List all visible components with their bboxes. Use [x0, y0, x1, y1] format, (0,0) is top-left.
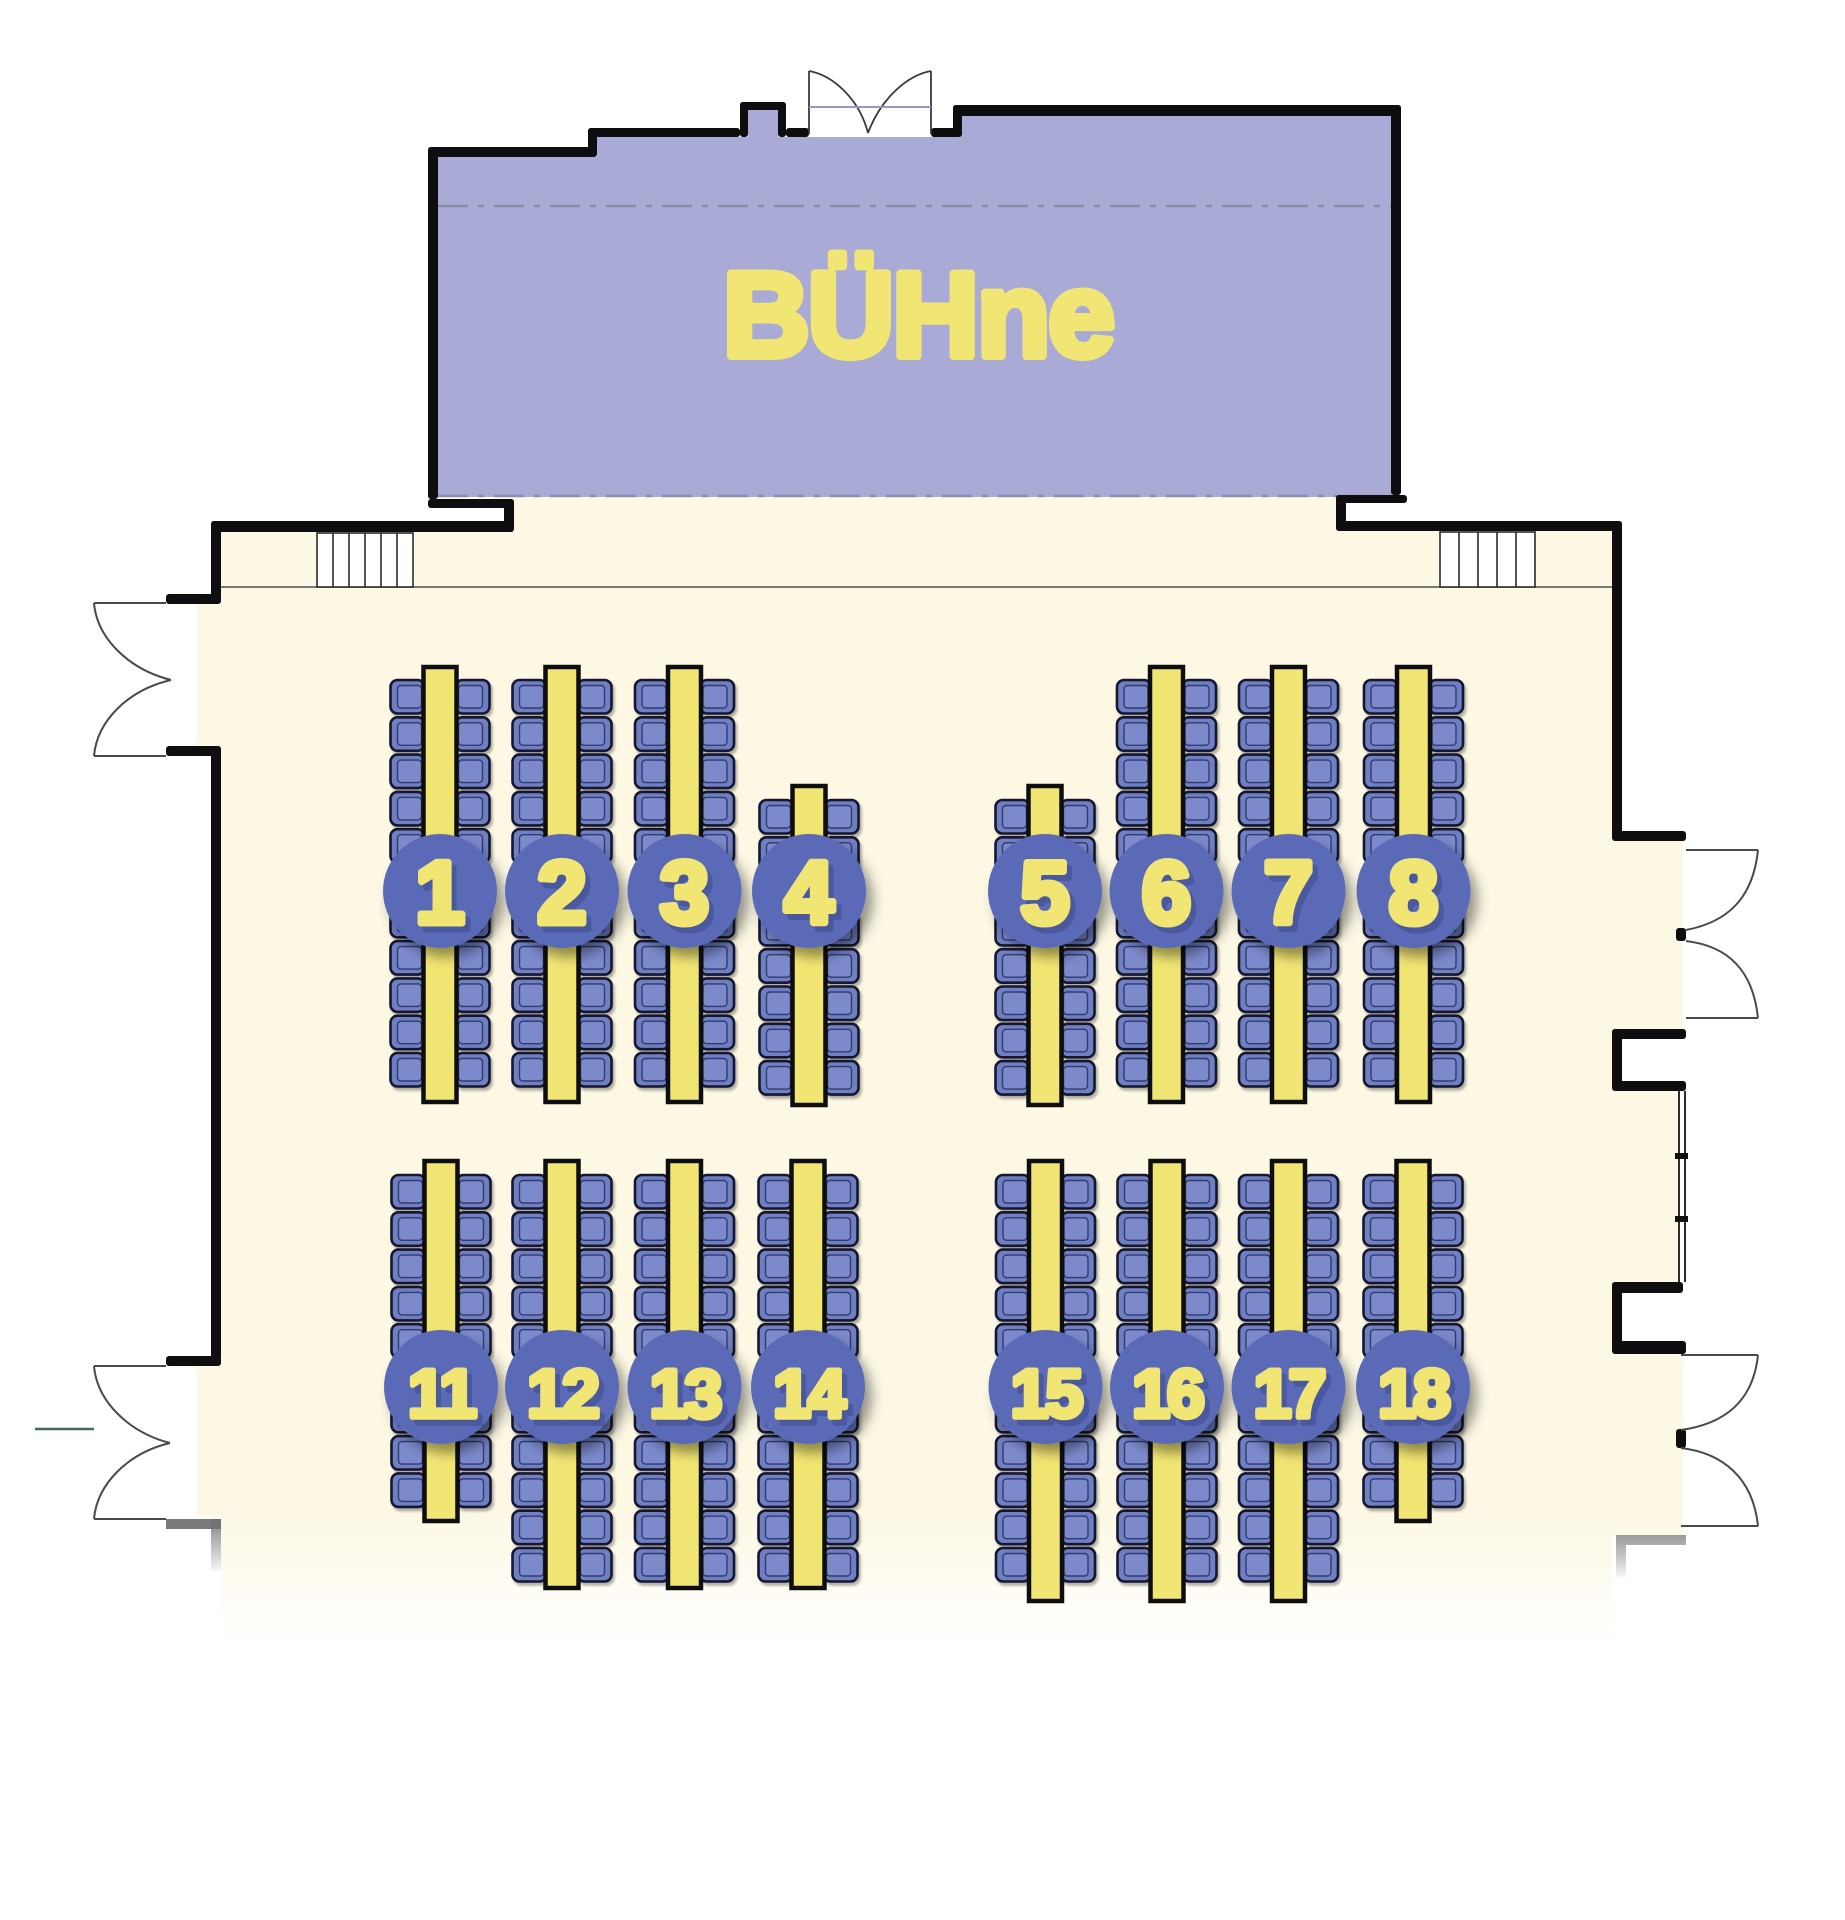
svg-text:14: 14: [773, 1356, 846, 1432]
svg-text:13: 13: [650, 1356, 721, 1432]
svg-text:16: 16: [1132, 1356, 1203, 1432]
svg-text:5: 5: [1021, 843, 1070, 942]
svg-text:1: 1: [416, 843, 465, 942]
svg-text:3: 3: [660, 843, 709, 942]
svg-text:8: 8: [1389, 843, 1438, 942]
svg-text:12: 12: [527, 1356, 598, 1432]
svg-text:18: 18: [1378, 1356, 1449, 1432]
svg-text:6: 6: [1142, 843, 1191, 942]
svg-text:7: 7: [1264, 843, 1313, 942]
svg-text:BÜHne: BÜHne: [723, 248, 1113, 382]
svg-text:4: 4: [785, 843, 834, 942]
svg-text:11: 11: [408, 1356, 475, 1432]
svg-text:17: 17: [1254, 1356, 1324, 1432]
svg-text:15: 15: [1011, 1356, 1082, 1432]
svg-text:2: 2: [538, 843, 587, 942]
